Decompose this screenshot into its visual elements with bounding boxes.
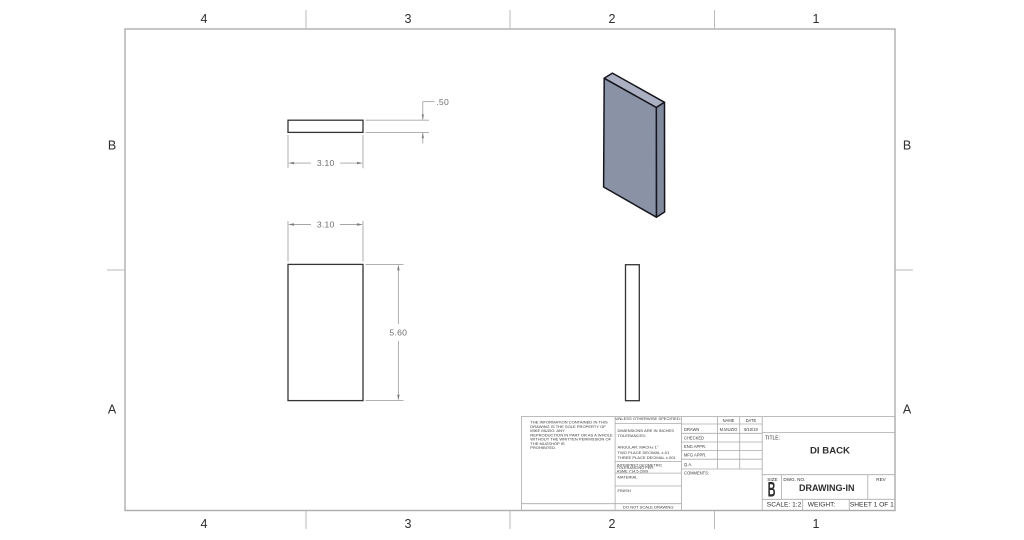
svg-text:CHECKED: CHECKED bbox=[684, 435, 704, 440]
svg-text:SHEET 1 OF 1: SHEET 1 OF 1 bbox=[850, 501, 894, 508]
svg-text:A: A bbox=[108, 403, 117, 417]
svg-text:DATE: DATE bbox=[746, 418, 757, 423]
svg-text:1: 1 bbox=[813, 517, 820, 531]
svg-text:DRAWING-IN: DRAWING-IN bbox=[799, 483, 855, 493]
svg-text:NAME: NAME bbox=[723, 418, 735, 423]
svg-text:5.60: 5.60 bbox=[389, 327, 407, 337]
svg-text:COMMENTS:: COMMENTS: bbox=[684, 471, 709, 476]
svg-text:.50: .50 bbox=[436, 97, 449, 107]
svg-text:TOLERANCES:: TOLERANCES: bbox=[618, 433, 647, 438]
svg-text:B: B bbox=[768, 477, 776, 501]
svg-text:DO NOT SCALE DRAWING: DO NOT SCALE DRAWING bbox=[623, 505, 674, 510]
svg-text:1: 1 bbox=[813, 12, 820, 26]
svg-text:FINISH: FINISH bbox=[618, 488, 631, 493]
svg-text:M.MUZIO: M.MUZIO bbox=[720, 427, 738, 432]
svg-text:DWG. NO.: DWG. NO. bbox=[783, 477, 805, 482]
svg-text:WEIGHT:: WEIGHT: bbox=[808, 502, 836, 509]
svg-text:9/10/19: 9/10/19 bbox=[744, 427, 758, 432]
svg-text:TITLE:: TITLE: bbox=[765, 435, 780, 441]
svg-text:2: 2 bbox=[609, 517, 616, 531]
svg-text:3.10: 3.10 bbox=[317, 158, 335, 168]
svg-text:4: 4 bbox=[201, 517, 208, 531]
svg-text:SCALE: 1:2: SCALE: 1:2 bbox=[767, 502, 802, 509]
svg-text:ENG APPR.: ENG APPR. bbox=[684, 444, 706, 449]
svg-text:A: A bbox=[903, 403, 912, 417]
svg-text:MFG APPR.: MFG APPR. bbox=[684, 453, 706, 458]
svg-text:UNLESS OTHERWISE SPECIFIED:: UNLESS OTHERWISE SPECIFIED: bbox=[616, 416, 681, 421]
svg-text:MATERIAL: MATERIAL bbox=[618, 474, 639, 479]
svg-text:Q.A.: Q.A. bbox=[684, 462, 692, 467]
svg-text:3.10: 3.10 bbox=[317, 220, 335, 230]
svg-text:ASME Y14.5-2009: ASME Y14.5-2009 bbox=[617, 469, 648, 473]
svg-text:4: 4 bbox=[201, 12, 208, 26]
svg-text:DI BACK: DI BACK bbox=[810, 445, 850, 456]
svg-text:3: 3 bbox=[405, 517, 412, 531]
svg-text:THREE PLACE DECIMAL ±.001: THREE PLACE DECIMAL ±.001 bbox=[618, 455, 677, 460]
svg-text:B: B bbox=[108, 139, 116, 153]
svg-text:PROHIBITED.: PROHIBITED. bbox=[530, 445, 556, 450]
svg-text:DRAWN: DRAWN bbox=[684, 427, 699, 432]
svg-text:B: B bbox=[903, 139, 911, 153]
svg-text:2: 2 bbox=[609, 12, 616, 26]
svg-text:REV: REV bbox=[876, 477, 886, 482]
svg-text:3: 3 bbox=[405, 12, 412, 26]
